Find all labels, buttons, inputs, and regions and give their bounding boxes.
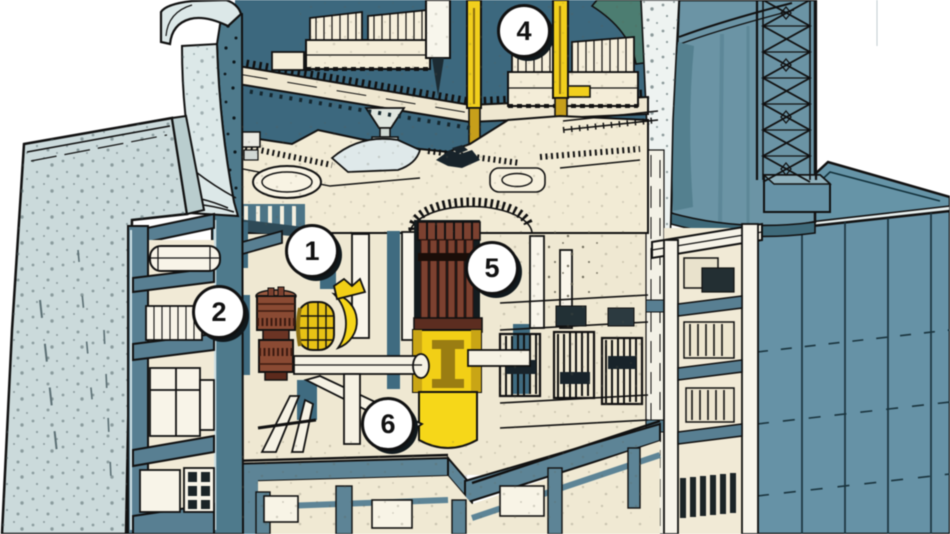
svg-text:6: 6 [380,409,395,439]
svg-text:5: 5 [484,253,499,283]
svg-text:1: 1 [304,236,319,266]
svg-text:2: 2 [211,297,226,327]
svg-text:4: 4 [516,16,531,46]
